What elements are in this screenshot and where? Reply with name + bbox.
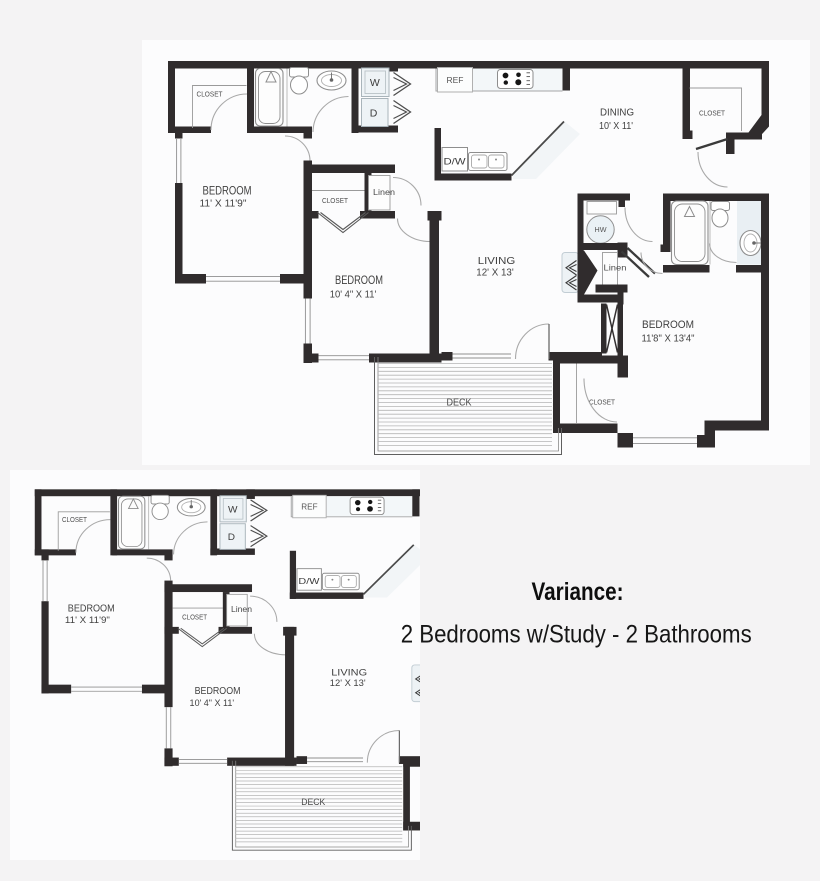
svg-text:BEDROOM: BEDROOM	[335, 275, 383, 287]
svg-text:DINING: DINING	[600, 107, 634, 119]
svg-text:BEDROOM: BEDROOM	[203, 186, 252, 198]
svg-text:D/W: D/W	[444, 157, 467, 167]
svg-text:Linen: Linen	[231, 605, 252, 614]
svg-text:REF: REF	[301, 503, 317, 512]
svg-text:CLOSET: CLOSET	[62, 517, 88, 524]
svg-text:Linen: Linen	[604, 263, 627, 273]
svg-text:BEDROOM: BEDROOM	[642, 319, 694, 331]
svg-text:DECK: DECK	[301, 797, 325, 808]
svg-text:BEDROOM: BEDROOM	[68, 603, 115, 615]
svg-text:D: D	[370, 108, 378, 120]
svg-text:Linen: Linen	[373, 187, 395, 197]
svg-text:11' X 11'9": 11' X 11'9"	[65, 615, 110, 626]
svg-text:CLOSET: CLOSET	[589, 398, 615, 407]
svg-text:2 Bedrooms w/Study - 2 Bathroo: 2 Bedrooms w/Study - 2 Bathrooms	[401, 621, 752, 649]
svg-text:LIVING: LIVING	[331, 668, 367, 679]
svg-text:W: W	[228, 504, 238, 515]
svg-text:10' 4" X 11': 10' 4" X 11'	[330, 289, 377, 301]
svg-text:D/W: D/W	[298, 576, 319, 586]
svg-text:CLOSET: CLOSET	[322, 196, 348, 205]
svg-text:W: W	[370, 77, 380, 89]
svg-text:12' X 13': 12' X 13'	[330, 678, 366, 688]
svg-text:D: D	[228, 532, 235, 543]
svg-text:11' X 11'9": 11' X 11'9"	[200, 198, 247, 210]
svg-text:BEDROOM: BEDROOM	[195, 685, 241, 697]
svg-text:10' 4" X 11': 10' 4" X 11'	[190, 698, 235, 709]
svg-text:CLOSET: CLOSET	[197, 90, 223, 99]
svg-text:10' X 11': 10' X 11'	[599, 121, 633, 132]
svg-text:REF: REF	[447, 75, 464, 85]
svg-text:LIVING: LIVING	[478, 255, 516, 267]
svg-text:11'8" X 13'4": 11'8" X 13'4"	[642, 333, 695, 345]
svg-text:DECK: DECK	[447, 397, 472, 409]
svg-text:CLOSET: CLOSET	[699, 109, 725, 118]
svg-text:12' X 13': 12' X 13'	[476, 268, 514, 279]
svg-text:Variance:: Variance:	[532, 578, 624, 606]
svg-text:CLOSET: CLOSET	[182, 615, 208, 622]
svg-text:HW: HW	[595, 227, 607, 234]
